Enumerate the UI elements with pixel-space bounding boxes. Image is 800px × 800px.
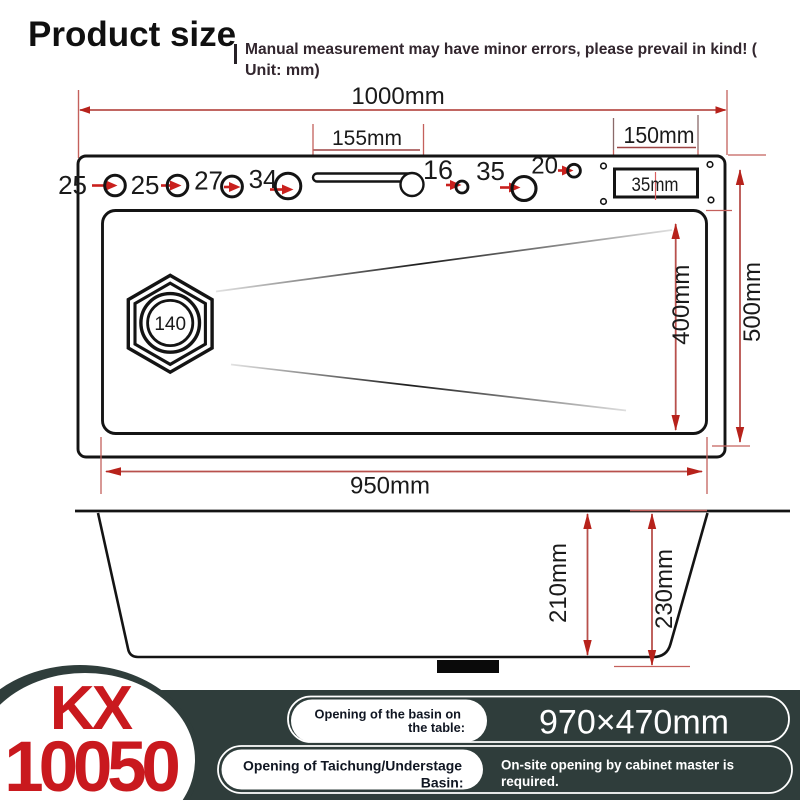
- svg-text:16: 16: [423, 155, 453, 185]
- svg-text:1000mm: 1000mm: [351, 83, 444, 110]
- svg-text:Opening of Taichung/Understage: Opening of Taichung/Understage: [243, 758, 462, 774]
- svg-text:500mm: 500mm: [739, 262, 766, 342]
- svg-text:210mm: 210mm: [545, 543, 572, 623]
- svg-text:950mm: 950mm: [350, 473, 430, 500]
- svg-text:On-site opening by cabinet mas: On-site opening by cabinet master is: [501, 758, 734, 773]
- svg-text:the table:: the table:: [408, 720, 465, 735]
- svg-text:35mm: 35mm: [632, 174, 679, 196]
- svg-text:required.: required.: [501, 774, 559, 789]
- svg-text:10050: 10050: [4, 728, 178, 800]
- svg-text:27: 27: [194, 166, 223, 196]
- svg-text:20: 20: [531, 153, 558, 180]
- svg-text:25: 25: [131, 170, 160, 200]
- svg-text:230mm: 230mm: [651, 549, 678, 629]
- svg-text:155mm: 155mm: [332, 127, 402, 150]
- svg-text:25: 25: [58, 170, 87, 200]
- svg-text:150mm: 150mm: [624, 122, 695, 148]
- svg-text:970×470mm: 970×470mm: [539, 704, 729, 742]
- svg-text:140: 140: [154, 314, 186, 335]
- svg-text:35: 35: [476, 156, 505, 186]
- svg-text:Manual measurement may have mi: Manual measurement may have minor errors…: [245, 41, 758, 58]
- svg-text:Basin:: Basin:: [421, 775, 464, 791]
- svg-text:400mm: 400mm: [668, 265, 695, 345]
- svg-text:Unit: mm): Unit: mm): [245, 62, 320, 79]
- svg-text:Product size: Product size: [28, 15, 236, 54]
